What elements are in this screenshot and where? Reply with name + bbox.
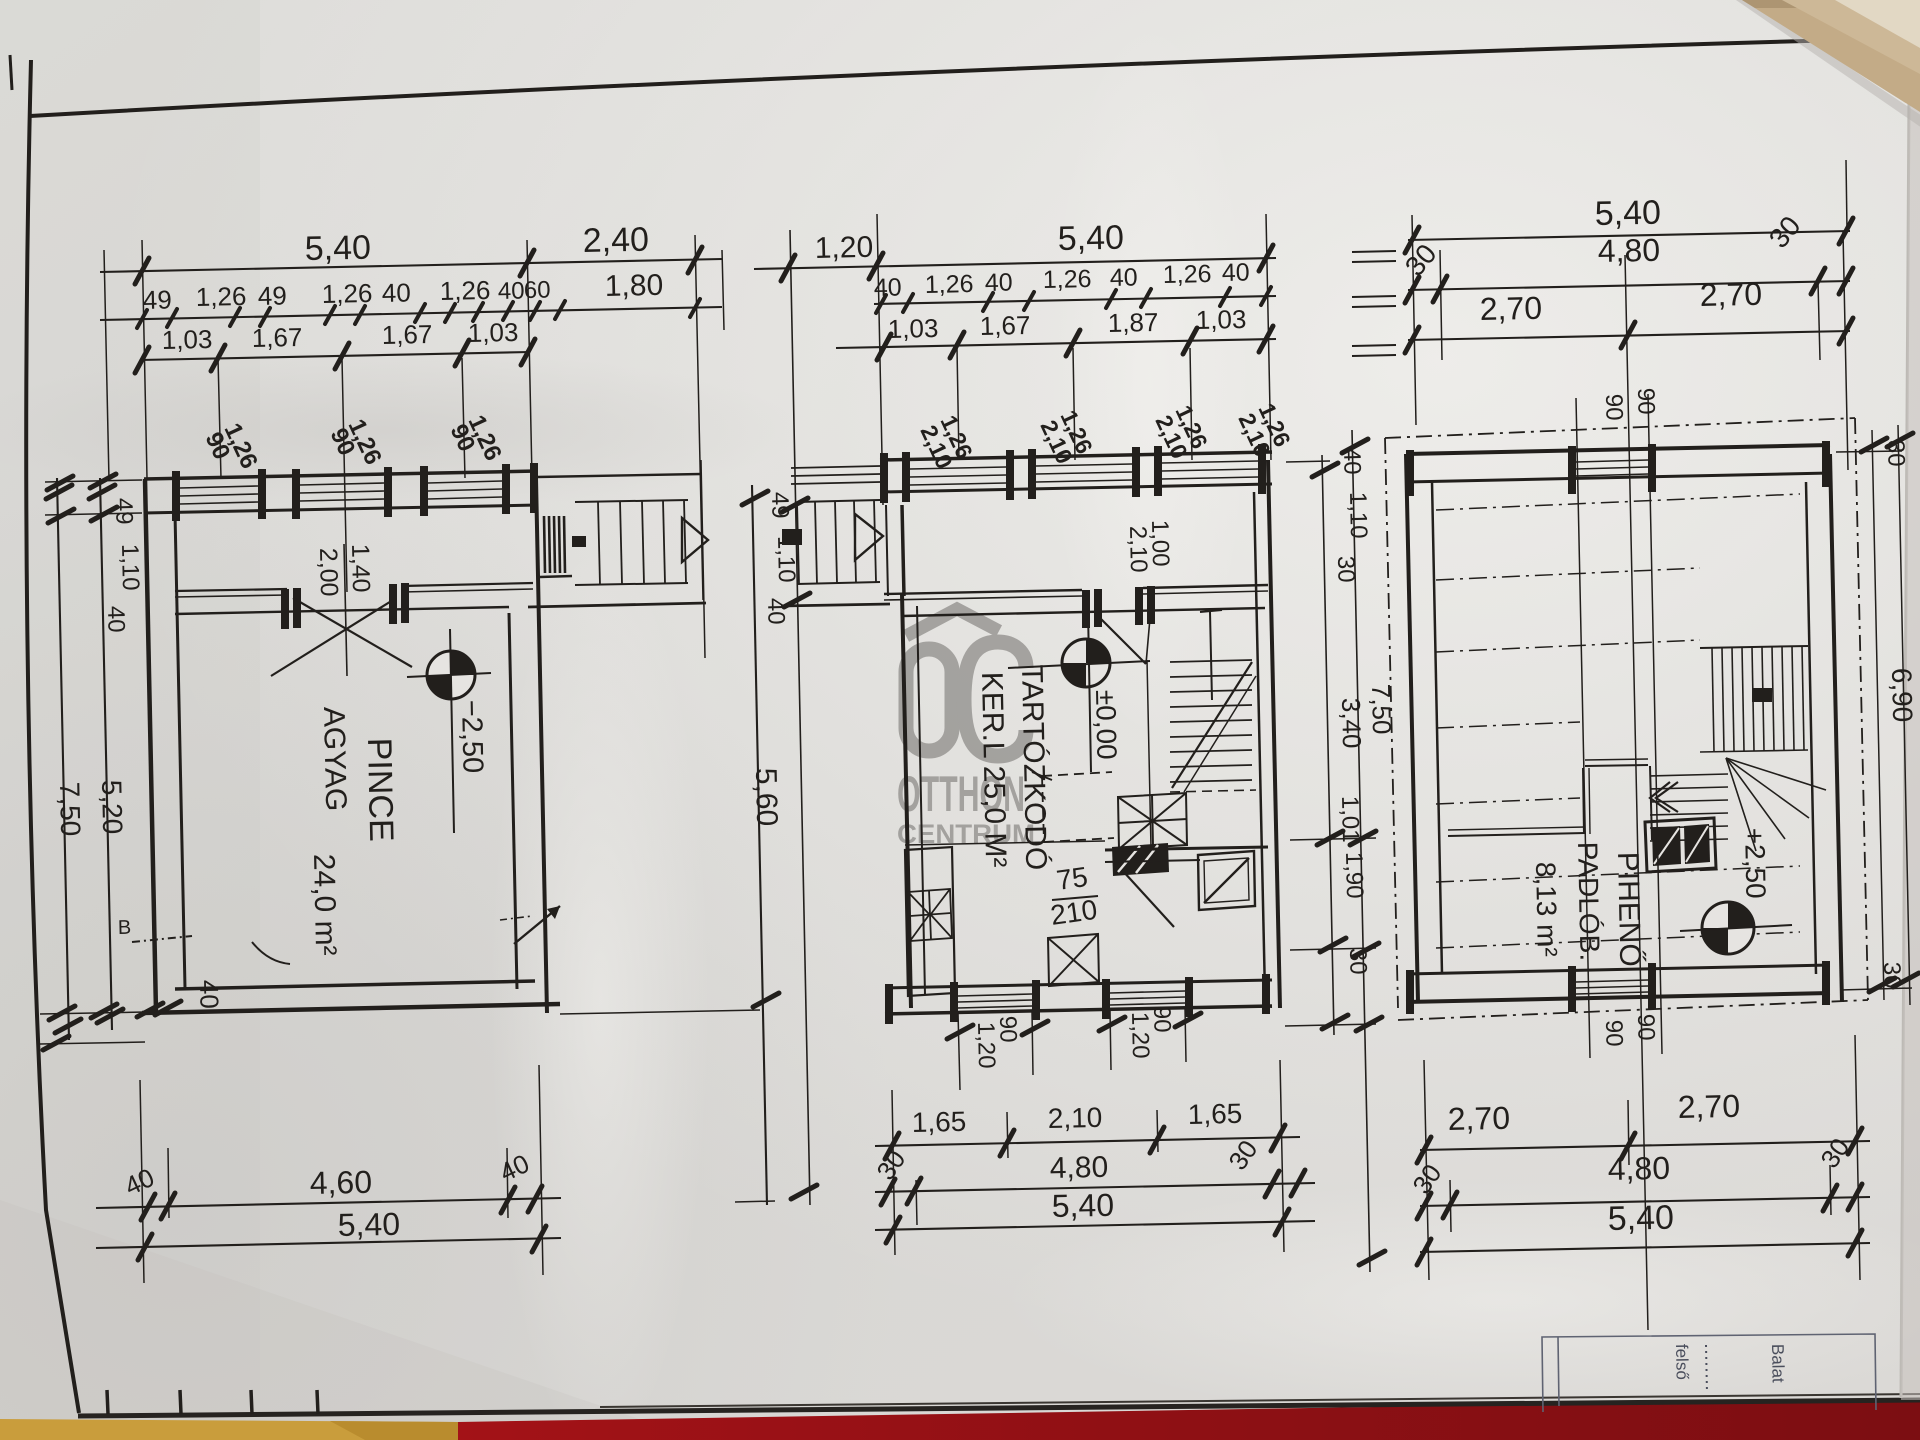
svg-text:5,40: 5,40 — [304, 229, 371, 268]
svg-text:1,90: 1,90 — [1340, 852, 1368, 899]
svg-text:1,87: 1,87 — [1107, 307, 1158, 338]
svg-text:1,03: 1,03 — [887, 313, 938, 344]
svg-text:TARTÓZKODÓ: TARTÓZKODÓ — [1015, 664, 1052, 870]
svg-text:2,70: 2,70 — [1447, 1100, 1510, 1137]
svg-text:2,10: 2,10 — [1124, 526, 1152, 573]
svg-text:40: 40 — [1338, 448, 1366, 475]
svg-text:1,67: 1,67 — [979, 310, 1030, 341]
svg-text:1,10: 1,10 — [1344, 492, 1372, 539]
svg-text:40: 40 — [381, 277, 411, 308]
svg-text:5,40: 5,40 — [1057, 219, 1124, 258]
svg-text:4,80: 4,80 — [1597, 232, 1660, 269]
svg-text:5,40: 5,40 — [1594, 194, 1661, 233]
svg-text:1,26: 1,26 — [321, 278, 372, 309]
svg-text:1,10: 1,10 — [116, 544, 144, 591]
svg-text:49: 49 — [257, 280, 287, 311]
svg-text:2,10: 2,10 — [1047, 1102, 1102, 1134]
svg-text:49: 49 — [142, 284, 172, 315]
svg-text:1,20: 1,20 — [814, 231, 873, 265]
svg-text:30: 30 — [1332, 556, 1360, 583]
svg-text:−2,50: −2,50 — [455, 699, 489, 773]
svg-text:90: 90 — [1600, 1020, 1628, 1047]
svg-text:1,03: 1,03 — [467, 317, 518, 348]
svg-text:40: 40 — [194, 979, 225, 1009]
svg-text:1,65: 1,65 — [911, 1106, 966, 1138]
svg-text:40: 40 — [102, 606, 130, 633]
svg-text:1,26: 1,26 — [1043, 265, 1092, 294]
svg-text:PINCE: PINCE — [360, 737, 400, 842]
svg-text:B: B — [118, 917, 132, 939]
svg-text:2,40: 2,40 — [582, 221, 649, 260]
svg-text:40: 40 — [1222, 258, 1250, 287]
svg-text:90: 90 — [994, 1016, 1022, 1043]
svg-text:4,80: 4,80 — [1607, 1150, 1670, 1187]
svg-text:5,40: 5,40 — [1607, 1199, 1674, 1238]
svg-text:40: 40 — [985, 268, 1013, 297]
svg-text:30: 30 — [1878, 962, 1906, 989]
svg-text:1,26: 1,26 — [925, 270, 974, 299]
svg-text:90: 90 — [1600, 394, 1628, 421]
svg-text:90: 90 — [1632, 1014, 1660, 1041]
svg-text:210: 210 — [1049, 894, 1100, 931]
svg-text:8,13 m²: 8,13 m² — [1530, 861, 1563, 957]
svg-text:6,90: 6,90 — [1886, 667, 1918, 722]
svg-text:1,26: 1,26 — [439, 275, 490, 306]
svg-text:49: 49 — [766, 492, 794, 519]
svg-text:1,40: 1,40 — [346, 544, 375, 593]
svg-text:40: 40 — [762, 598, 790, 625]
svg-text:1,67: 1,67 — [381, 319, 432, 350]
svg-text:49: 49 — [110, 498, 138, 525]
svg-text:7,50: 7,50 — [54, 781, 86, 836]
svg-text:AGYAG: AGYAG — [317, 706, 352, 811]
svg-text:5,40: 5,40 — [1051, 1187, 1114, 1224]
svg-text:90: 90 — [1632, 388, 1660, 415]
svg-text:90: 90 — [1148, 1006, 1176, 1033]
svg-text:75: 75 — [1055, 861, 1090, 896]
svg-text:1,03: 1,03 — [161, 324, 212, 355]
svg-text:40: 40 — [498, 277, 525, 305]
svg-text:1,03: 1,03 — [1195, 304, 1246, 335]
svg-text:3,40: 3,40 — [1336, 697, 1367, 748]
svg-text:±0,00: ±0,00 — [1090, 689, 1122, 760]
svg-text:5,40: 5,40 — [337, 1206, 400, 1243]
svg-text:5,20: 5,20 — [96, 779, 128, 834]
svg-text:KER.L 25,0 M²: KER.L 25,0 M² — [975, 671, 1012, 867]
svg-text:4,60: 4,60 — [309, 1164, 372, 1201]
svg-text:30: 30 — [1882, 440, 1910, 467]
svg-text:+2,50: +2,50 — [1739, 827, 1771, 898]
svg-text:1,80: 1,80 — [604, 269, 663, 303]
svg-text:felső: felső — [1672, 1344, 1692, 1380]
svg-text:1,65: 1,65 — [1187, 1098, 1242, 1130]
svg-text:PIHENŐ: PIHENŐ — [1611, 851, 1646, 967]
svg-text:5,60: 5,60 — [749, 767, 783, 826]
svg-text:1,26: 1,26 — [195, 281, 246, 312]
svg-text:2,70: 2,70 — [1699, 276, 1762, 313]
svg-text:2,70: 2,70 — [1677, 1088, 1740, 1125]
svg-text:2,00: 2,00 — [314, 548, 343, 597]
svg-text:1,67: 1,67 — [251, 322, 302, 353]
svg-text:4,80: 4,80 — [1049, 1151, 1108, 1185]
svg-text:2,70: 2,70 — [1479, 290, 1542, 327]
svg-text:1,26: 1,26 — [1163, 260, 1212, 289]
svg-text:PADLÓB.: PADLÓB. — [1572, 841, 1605, 961]
svg-text:24,0 m²: 24,0 m² — [307, 853, 342, 955]
svg-text:40: 40 — [1110, 263, 1138, 292]
svg-text:Balat: Balat — [1768, 1344, 1788, 1383]
